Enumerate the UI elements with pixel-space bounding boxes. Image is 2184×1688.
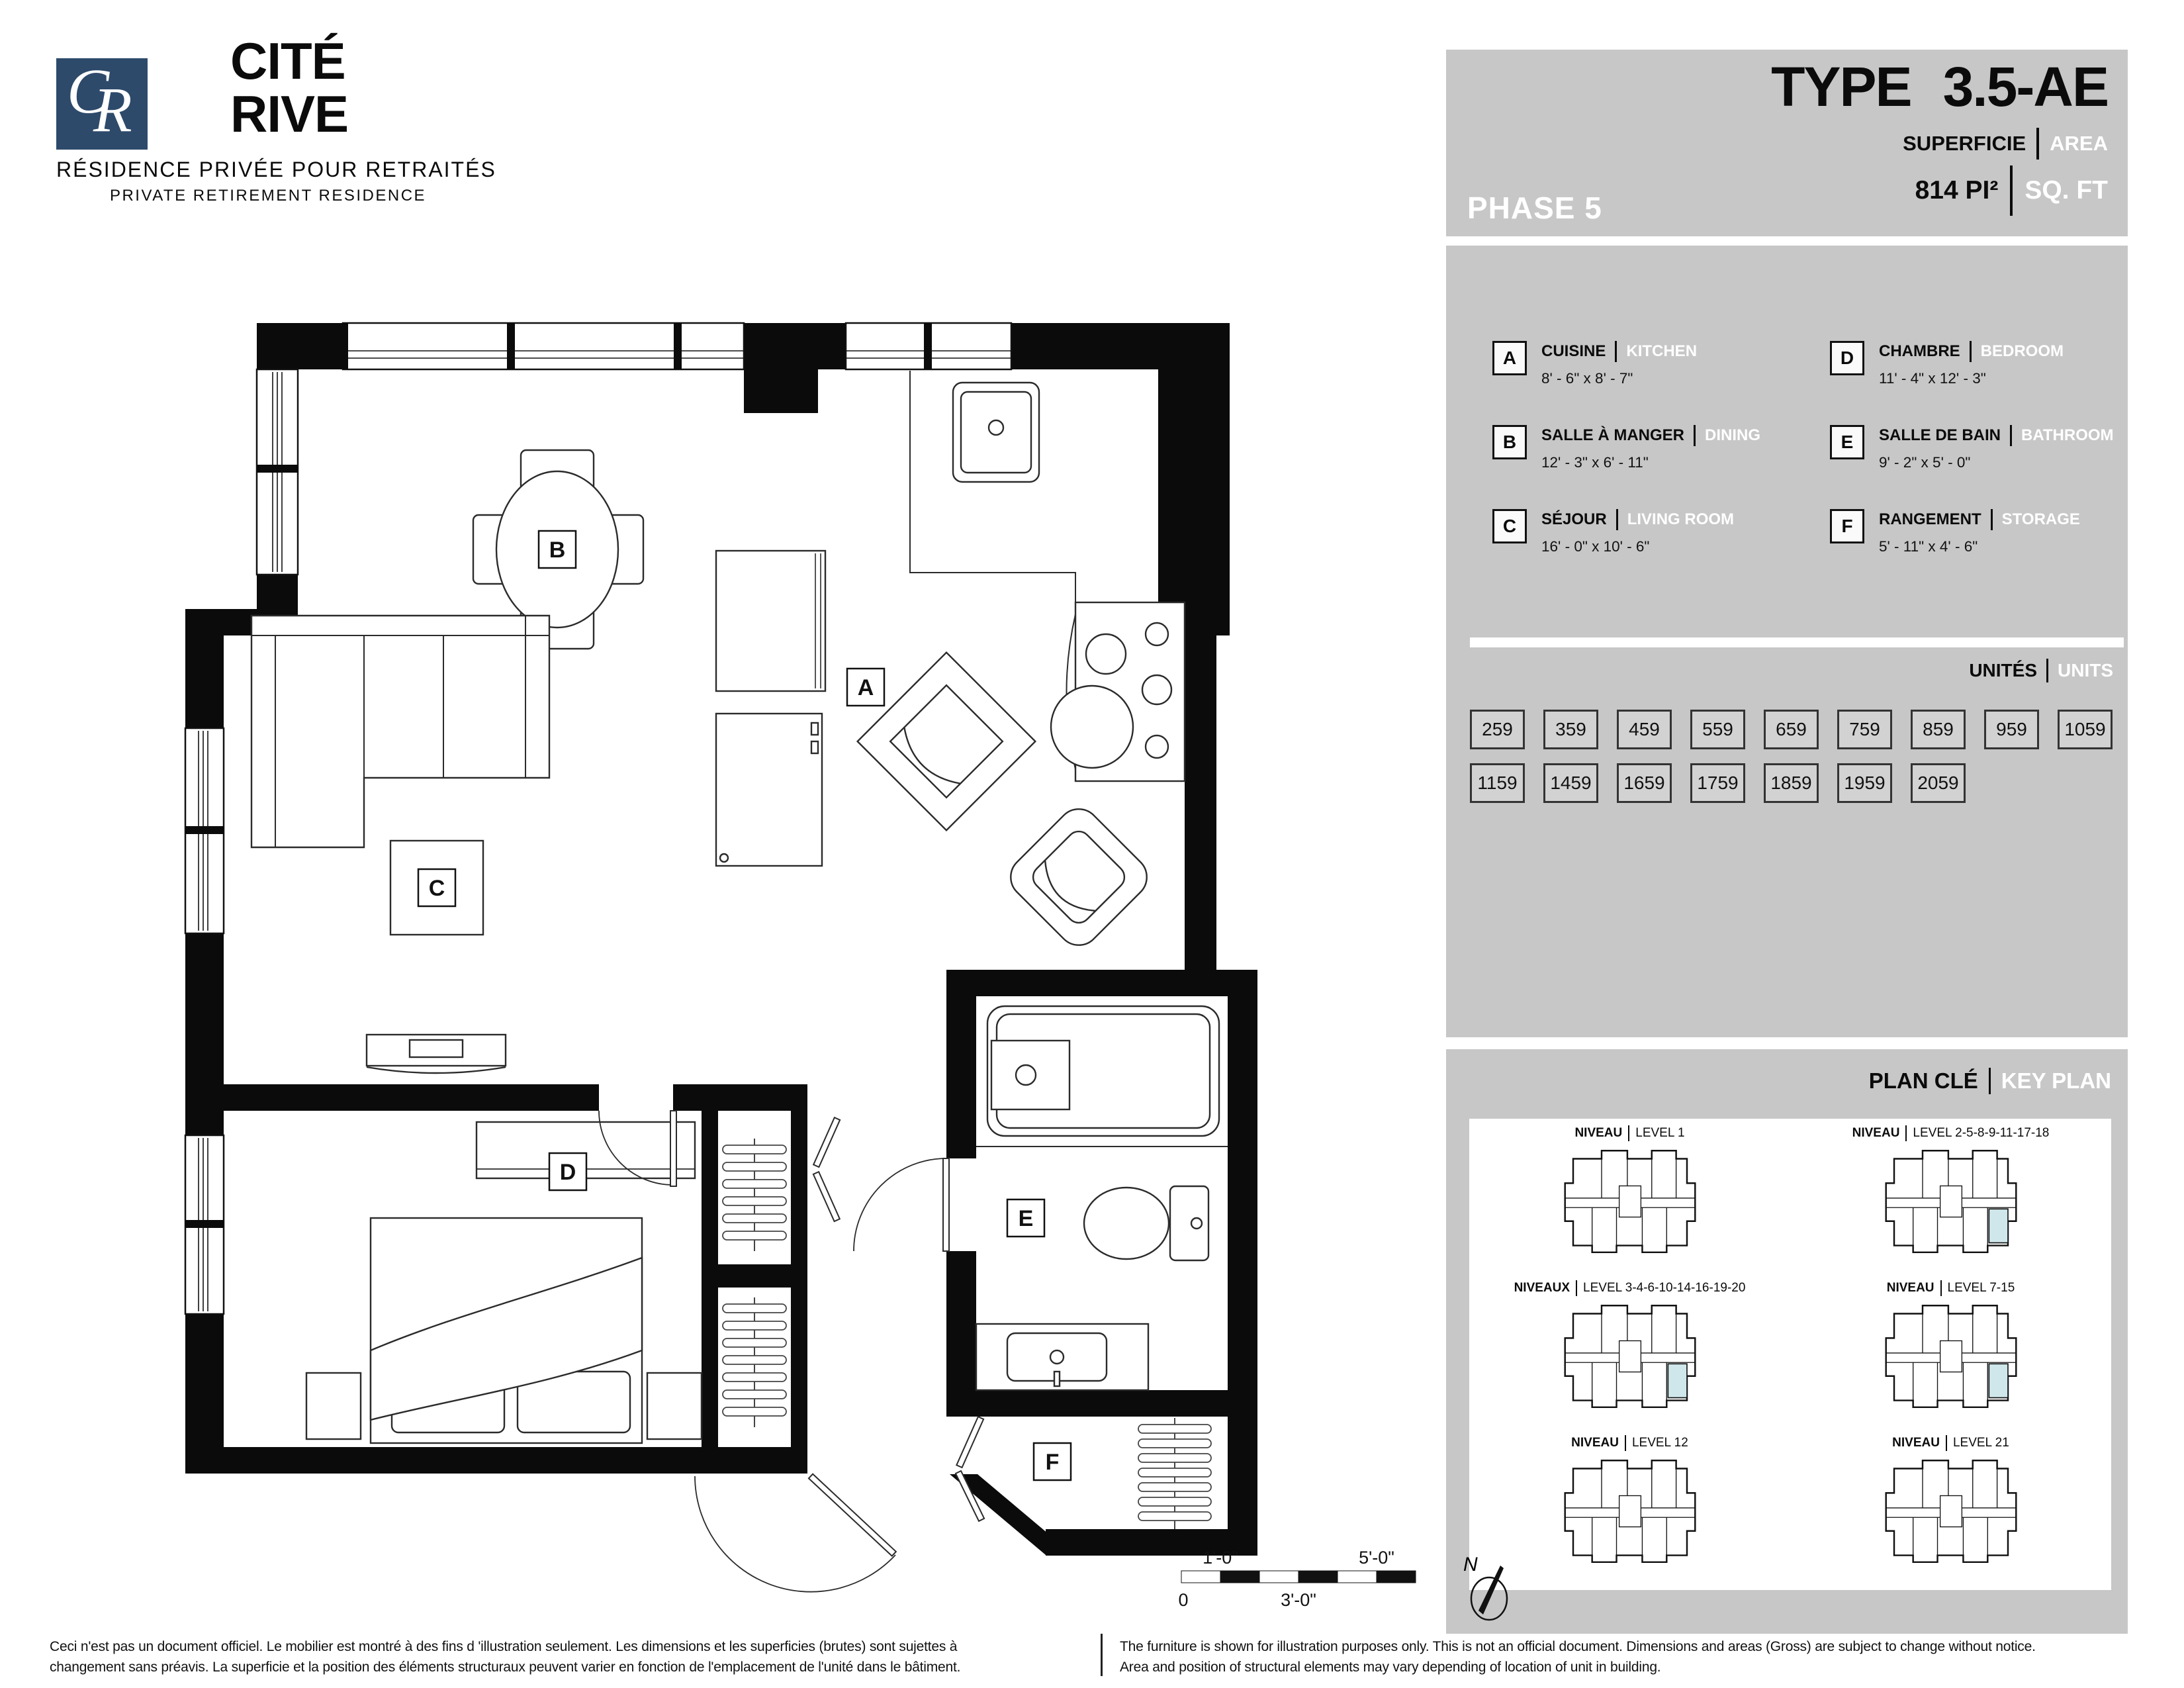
- burner: [1146, 735, 1168, 758]
- entry-door-leaf: [809, 1474, 896, 1556]
- legend-letter: C: [1492, 509, 1527, 543]
- logo-tagline-en: PRIVATE RETIREMENT RESIDENCE: [56, 187, 480, 205]
- unit-number-2059: 2059: [1911, 763, 1966, 803]
- unit-number-1059: 1059: [2058, 710, 2113, 749]
- legend-letter: D: [1830, 341, 1864, 375]
- divider: [2010, 165, 2013, 216]
- sofa: [251, 616, 549, 847]
- keyplan-panel: PLAN CLÉ KEY PLAN NIVEAULEVEL 1 NIVEAULE…: [1446, 1049, 2128, 1634]
- room-dimensions: 9' - 2" x 5' - 0": [1879, 454, 2114, 471]
- legend-item-d: DCHAMBREBEDROOM11' - 4" x 12' - 3": [1830, 341, 2064, 387]
- divider: [2046, 659, 2048, 682]
- bedroom-door-leaf: [670, 1111, 676, 1186]
- room-name-fr: CHAMBRE: [1879, 342, 1960, 361]
- nightstand: [647, 1373, 702, 1439]
- room-dimensions: 16' - 0" x 10' - 6": [1541, 538, 1734, 555]
- unit-number-row-2: 1159145916591759185919592059: [1470, 763, 1966, 803]
- legend-item-a: ACUISINEKITCHEN8' - 6" x 8' - 7": [1492, 341, 1697, 387]
- unit-number-259: 259: [1470, 710, 1525, 749]
- bathroom-door-arc: [854, 1158, 946, 1251]
- legend-panel: ACUISINEKITCHEN8' - 6" x 8' - 7"BSALLE À…: [1446, 246, 2128, 1037]
- unit-number-1659: 1659: [1617, 763, 1672, 803]
- logo-tagline-fr: RÉSIDENCE PRIVÉE POUR RETRAITÉS: [56, 158, 480, 182]
- header-panel: PHASE 5 TYPE 3.5-AE SUPERFICIE AREA 814 …: [1446, 50, 2128, 236]
- room-dimensions: 11' - 4" x 12' - 3": [1879, 370, 2064, 387]
- keyplan-level-3: NIVEAUXLEVEL 3-4-6-10-14-16-19-20: [1469, 1280, 1790, 1435]
- legend-item-e: ESALLE DE BAINBATHROOM9' - 2" x 5' - 0": [1830, 425, 2114, 471]
- room-name-en: STORAGE: [2002, 510, 2080, 529]
- area-value-row: 814 PI² SQ. FT: [1915, 165, 2108, 216]
- room-label-b: B: [539, 531, 576, 568]
- area-value: 814 PI²: [1915, 176, 1999, 205]
- room-dimensions: 8' - 6" x 8' - 7": [1541, 370, 1697, 387]
- legend-item-b: BSALLE À MANGERDINING12' - 3" x 6' - 11": [1492, 425, 1760, 471]
- building-footprint: [1561, 1144, 1700, 1258]
- unit-number-row-1: 2593594595596597598599591059: [1470, 710, 2113, 749]
- room-name-fr: SÉJOUR: [1541, 510, 1607, 529]
- unit-number-1459: 1459: [1543, 763, 1598, 803]
- svg-text:F: F: [1046, 1450, 1060, 1475]
- logo-letter-r: R: [93, 78, 132, 142]
- scale-5ft: 5'-0": [1359, 1548, 1394, 1568]
- keyplan-level-label: NIVEAULEVEL 21: [1892, 1435, 2009, 1451]
- divider: [2036, 128, 2039, 160]
- scale-3ft: 3'-0": [1281, 1590, 1316, 1610]
- svg-text:C: C: [429, 876, 445, 901]
- lounge-chair: [1002, 800, 1156, 954]
- unit-number-459: 459: [1617, 710, 1672, 749]
- unit-number-1959: 1959: [1837, 763, 1892, 803]
- storage-bifold: [956, 1417, 983, 1468]
- unit-number-1159: 1159: [1470, 763, 1525, 803]
- divider: [1991, 509, 1993, 530]
- unit-number-859: 859: [1911, 710, 1966, 749]
- room-label-a: A: [847, 669, 884, 706]
- room-dimensions: 12' - 3" x 6' - 11": [1541, 454, 1760, 471]
- keyplan-grid: NIVEAULEVEL 1 NIVEAULEVEL 2-5-8-9-11-17-…: [1469, 1119, 2111, 1590]
- closet-bifold: [813, 1117, 840, 1167]
- keyplan-title: PLAN CLÉ KEY PLAN: [1869, 1068, 2111, 1094]
- room-name-en: BATHROOM: [2021, 426, 2114, 445]
- phase-label: PHASE 5: [1467, 190, 1602, 226]
- unit-number-759: 759: [1837, 710, 1892, 749]
- disclaimer-fr: Ceci n'est pas un document officiel. Le …: [50, 1636, 1092, 1677]
- units-title: UNITÉS UNITS: [1969, 659, 2113, 682]
- room-name-en: BEDROOM: [1981, 342, 2064, 361]
- closet-bifold: [813, 1172, 840, 1221]
- burner: [1146, 623, 1168, 645]
- building-footprint: [1561, 1299, 1700, 1413]
- keyplan-level-label: NIVEAULEVEL 12: [1571, 1435, 1688, 1451]
- room-label-e: E: [1007, 1199, 1044, 1237]
- keyplan-level-label: NIVEAULEVEL 2-5-8-9-11-17-18: [1852, 1125, 2050, 1141]
- faucet: [989, 420, 1003, 435]
- highlighted-unit: [1668, 1364, 1687, 1397]
- legend-letter: A: [1492, 341, 1527, 375]
- legend-item-f: FRANGEMENTSTORAGE5' - 11" x 4' - 6": [1830, 509, 2080, 555]
- burner: [1086, 634, 1126, 674]
- keyplan-level-label: NIVEAULEVEL 7-15: [1887, 1280, 2015, 1296]
- unit-number-1759: 1759: [1690, 763, 1745, 803]
- legend-item-c: CSÉJOURLIVING ROOM16' - 0" x 10' - 6": [1492, 509, 1734, 555]
- unit-number-559: 559: [1690, 710, 1745, 749]
- building-footprint: [1561, 1454, 1700, 1568]
- disclaimer-en: The furniture is shown for illustration …: [1120, 1636, 2152, 1677]
- unit-number-959: 959: [1984, 710, 2039, 749]
- divider: [1616, 509, 1618, 530]
- legend-letter: E: [1830, 425, 1864, 459]
- divider: [1989, 1068, 1991, 1094]
- north-letter: N: [1463, 1554, 1478, 1575]
- room-label-f: F: [1034, 1443, 1071, 1480]
- unit-number-659: 659: [1764, 710, 1819, 749]
- divider: [2010, 425, 2012, 446]
- keyplan-level-4: NIVEAULEVEL 7-15: [1790, 1280, 2111, 1435]
- compass-needle: [1479, 1566, 1504, 1615]
- burner: [1142, 675, 1171, 704]
- svg-text:B: B: [549, 538, 566, 563]
- toilet-tank: [1170, 1186, 1208, 1260]
- room-name-fr: RANGEMENT: [1879, 510, 1981, 529]
- room-name-fr: SALLE DE BAIN: [1879, 426, 2001, 445]
- room-label-c: C: [418, 869, 455, 906]
- unit-type-title: TYPE 3.5-AE: [1771, 55, 2108, 119]
- logo-monogram-square: C R: [56, 58, 148, 150]
- unit-type-value: 3.5-AE: [1943, 55, 2108, 119]
- nightstand: [306, 1373, 361, 1439]
- room-name-en: LIVING ROOM: [1627, 510, 1734, 529]
- area-label-row: SUPERFICIE AREA: [1903, 128, 2108, 160]
- divider: [1694, 425, 1696, 446]
- divider: [1615, 341, 1617, 362]
- room-dimensions: 5' - 11" x 4' - 6": [1879, 538, 2080, 555]
- scale-bar: [1181, 1571, 1416, 1583]
- floor-plan: ABCDEF 1'-0" 5'-0" 0 3'-0": [86, 318, 1436, 1642]
- units-divider-bar: [1470, 637, 2124, 647]
- divider: [1970, 341, 1972, 362]
- room-name-fr: SALLE À MANGER: [1541, 426, 1684, 445]
- unit-number-1859: 1859: [1764, 763, 1819, 803]
- toilet-bowl: [1084, 1188, 1169, 1259]
- appliance: [716, 714, 822, 866]
- keyplan-level-1: NIVEAULEVEL 1: [1469, 1125, 1790, 1280]
- fridge: [716, 551, 825, 691]
- scale-1ft: 1'-0": [1203, 1548, 1238, 1568]
- room-name-en: DINING: [1705, 426, 1760, 445]
- highlighted-unit: [1989, 1209, 2008, 1243]
- footer-divider: [1101, 1634, 1103, 1676]
- logo-wordmark: CITÉ RIVE: [230, 34, 348, 140]
- svg-text:E: E: [1019, 1206, 1034, 1231]
- svg-text:A: A: [858, 675, 874, 700]
- building-footprint: [1882, 1144, 2021, 1258]
- keyplan-level-6: NIVEAULEVEL 21: [1790, 1435, 2111, 1590]
- unit-number-359: 359: [1543, 710, 1598, 749]
- legend-letter: B: [1492, 425, 1527, 459]
- north-compass: N: [1458, 1550, 1521, 1626]
- legend-letter: F: [1830, 509, 1864, 543]
- room-name-fr: CUISINE: [1541, 342, 1606, 361]
- room-label-d: D: [549, 1153, 586, 1190]
- building-footprint: [1882, 1454, 2021, 1568]
- scale-0: 0: [1178, 1590, 1188, 1610]
- svg-text:D: D: [560, 1160, 576, 1185]
- room-name-en: KITCHEN: [1626, 342, 1697, 361]
- keyplan-level-label: NIVEAUXLEVEL 3-4-6-10-14-16-19-20: [1514, 1280, 1746, 1296]
- building-footprint: [1882, 1299, 2021, 1413]
- bathroom-door-leaf: [943, 1158, 949, 1251]
- entry-door-arc: [695, 1476, 895, 1592]
- side-table: [1051, 686, 1133, 768]
- keyplan-level-2: NIVEAULEVEL 2-5-8-9-11-17-18: [1790, 1125, 2111, 1280]
- highlighted-unit: [1989, 1364, 2008, 1397]
- keyplan-level-label: NIVEAULEVEL 1: [1574, 1125, 1684, 1141]
